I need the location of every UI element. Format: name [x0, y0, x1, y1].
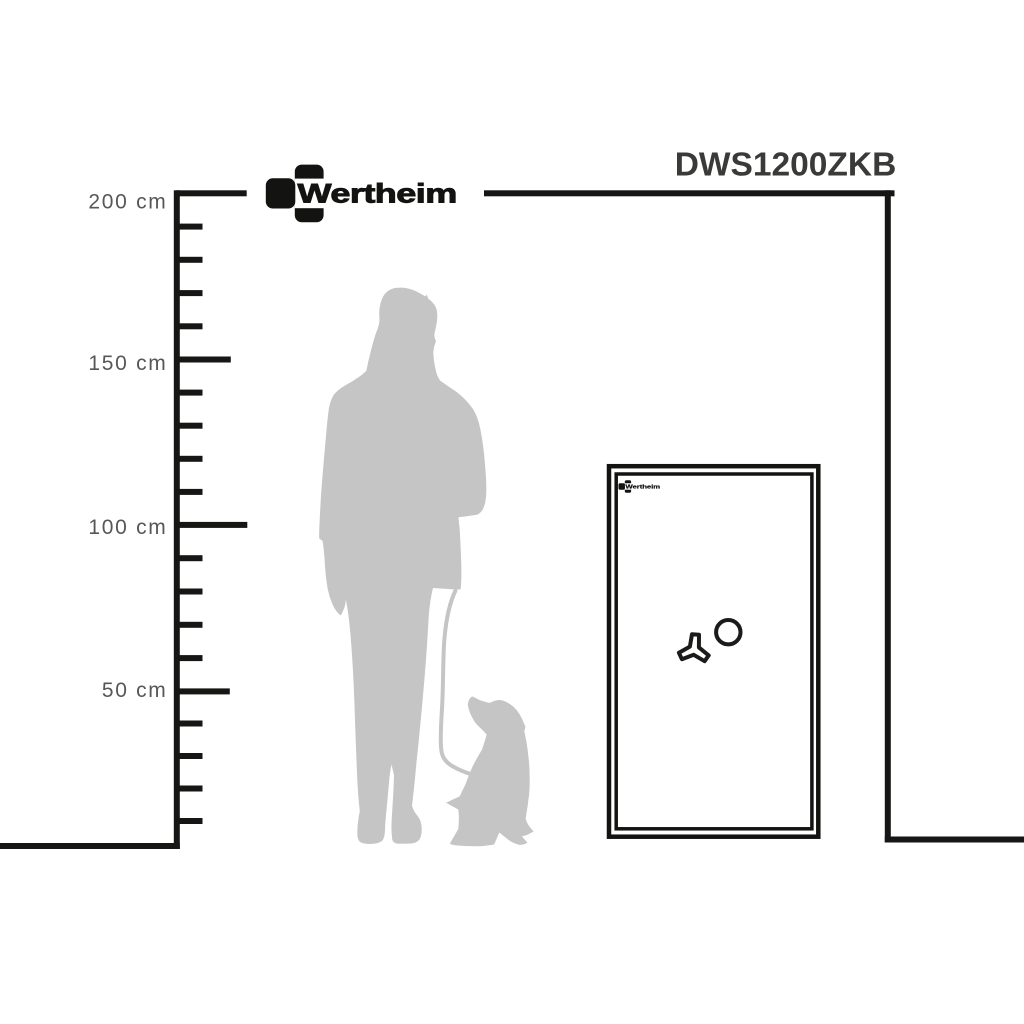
- svg-text:150 cm: 150 cm: [88, 352, 167, 375]
- svg-text:DWS1200ZKB: DWS1200ZKB: [675, 147, 897, 184]
- svg-text:200 cm: 200 cm: [88, 190, 167, 213]
- svg-text:50 cm: 50 cm: [102, 679, 168, 702]
- svg-text:Wertheim: Wertheim: [298, 178, 457, 208]
- svg-text:100 cm: 100 cm: [88, 516, 167, 539]
